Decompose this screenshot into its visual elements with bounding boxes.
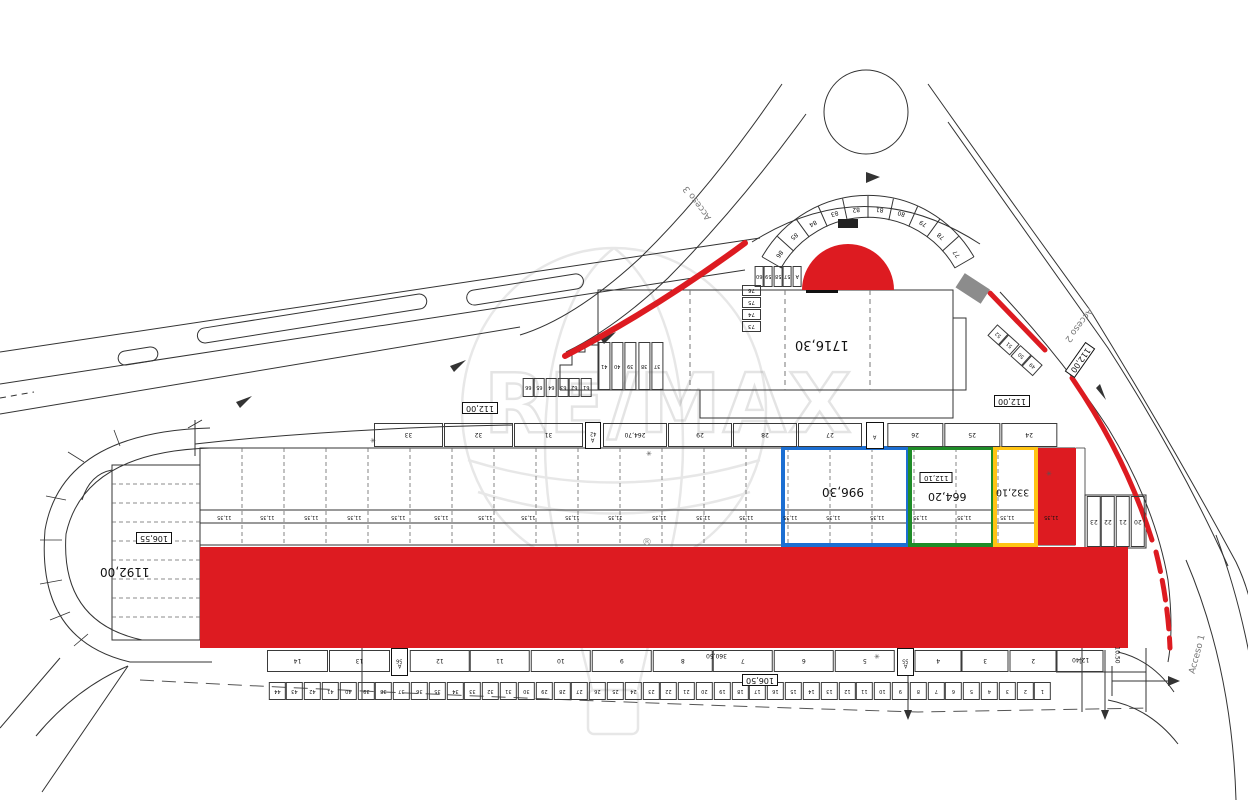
- manhole-icon: ✳: [1046, 470, 1052, 478]
- loop-ticks: [40, 430, 120, 646]
- dimension-text: 11,35: [856, 511, 899, 523]
- stall-number: 80: [897, 209, 907, 218]
- stall-number: 15: [785, 682, 802, 700]
- steps-stall-row: 4140393837: [597, 342, 664, 390]
- stall-number: 79: [918, 218, 928, 228]
- stall-number: 1: [1034, 682, 1051, 700]
- stall-number: 62: [569, 378, 580, 397]
- stall-number: 37: [651, 342, 663, 390]
- stall-number: A: [793, 266, 802, 287]
- stall-number: 40: [340, 682, 357, 700]
- red-dome: [802, 244, 894, 290]
- stall-number: 3: [999, 682, 1016, 700]
- entrance-arrow-line: [1112, 666, 1172, 696]
- stall-number: 14: [803, 682, 820, 700]
- stall-number: 22: [1101, 496, 1115, 547]
- dimension-text: 11,35: [246, 511, 289, 523]
- stall-number: 20: [1131, 496, 1145, 547]
- stall-number: 59: [764, 266, 773, 287]
- dim-112-left: 112,00: [462, 402, 498, 414]
- stall-number: 6: [774, 650, 834, 672]
- blue-parcel-area-label: 996,30: [822, 486, 864, 498]
- stall-number: 11: [856, 682, 873, 700]
- stall-number: 24: [625, 682, 642, 700]
- stall-number: 58: [774, 266, 783, 287]
- exit-road-lines: [0, 658, 128, 792]
- stall-number: 23: [643, 682, 660, 700]
- stall-number: 3: [962, 650, 1009, 672]
- left-lot-area-label: 1192,00: [100, 566, 150, 578]
- stall-number: 31: [514, 423, 583, 447]
- bottom-small-stall-row: 4443424140393837363534333231302928272625…: [268, 682, 1052, 700]
- building-step-right: [953, 318, 966, 390]
- loop-inner2: [82, 470, 112, 500]
- dimension-text: 11,35: [551, 511, 594, 523]
- stall-number: 33: [464, 682, 481, 700]
- stall-number: 39: [624, 342, 636, 390]
- stall-number: 65: [534, 378, 545, 397]
- stall-number: 4: [915, 650, 962, 672]
- stall-number: 39: [358, 682, 375, 700]
- entrance-arc: [1108, 700, 1178, 744]
- stall-number: 5: [835, 650, 895, 672]
- stall-number: 21: [1116, 496, 1130, 547]
- stall-number: 2: [1017, 682, 1034, 700]
- stall-number: 12: [410, 650, 470, 672]
- dimension-text: 11,35: [333, 511, 376, 523]
- stall-number: 61: [581, 378, 592, 397]
- dimension-text: 11,35: [377, 511, 420, 523]
- dim-112-right: 112,00: [994, 395, 1030, 407]
- stall-number: 21: [678, 682, 695, 700]
- stall-number: 30: [518, 682, 535, 700]
- stall-number: 43: [286, 682, 303, 700]
- arrow-icon: [450, 360, 466, 372]
- stall-number: 27: [798, 423, 862, 447]
- stall-number: 8: [910, 682, 927, 700]
- stall-number: 5: [963, 682, 980, 700]
- stall-number: 33: [374, 423, 443, 447]
- watermark-registered-mark: ®: [642, 538, 652, 548]
- dimension-text: 11,35: [725, 511, 768, 523]
- stall-number: 29: [668, 423, 732, 447]
- stall-number: 10: [874, 682, 891, 700]
- stall-number: 57: [783, 266, 792, 287]
- stall-number: 2: [1010, 650, 1057, 672]
- acceso1-arc-outer: [1216, 535, 1248, 800]
- dim-12-40: 12,40: [1072, 656, 1089, 662]
- stall-number: 10: [531, 650, 591, 672]
- stall-number: 77: [952, 249, 962, 259]
- stall-number: 13: [329, 650, 390, 672]
- stall-number: 7: [928, 682, 945, 700]
- roundabout-circle: [824, 70, 908, 154]
- stall-number: 29: [536, 682, 553, 700]
- stall-number: 12: [839, 682, 856, 700]
- dimension-text: 11,35: [769, 511, 812, 523]
- stall-number: 34: [447, 682, 464, 700]
- narrow-stall-a: A: [866, 422, 884, 449]
- arrow-icon: [1168, 676, 1180, 686]
- gray-utility-box: [956, 273, 990, 304]
- stall-number: 83: [830, 209, 840, 218]
- dimension-text: 11,35: [594, 511, 637, 523]
- stall-number: 23: [1087, 496, 1101, 547]
- traffic-island: [117, 346, 159, 366]
- arrow-icon: [1096, 384, 1106, 400]
- dimension-text: 11,35: [1030, 511, 1073, 523]
- dimension-text: 11,35: [986, 511, 1029, 523]
- dim-360-50: 360,50: [706, 652, 727, 658]
- acceso1-arc: [1186, 560, 1236, 800]
- stall-number: 63: [558, 378, 569, 397]
- stall-number: 86: [774, 249, 784, 259]
- bottom-wide-row-b: 12111098765: [409, 650, 895, 672]
- building-area-label: 1716,30: [795, 338, 849, 351]
- narrow-stall-56: 56A: [391, 648, 408, 676]
- site-plan: RE/MAX: [0, 0, 1248, 800]
- dimension-text: 11,35: [943, 511, 986, 523]
- stall-number: 82: [852, 206, 861, 214]
- stall-number: 8: [653, 650, 713, 672]
- stall-number: 35: [429, 682, 446, 700]
- arc-dark-tag: [838, 219, 858, 228]
- field-cell-dividers: [242, 448, 1040, 545]
- stall-number: 25: [607, 682, 624, 700]
- dimension-text: 11,35: [899, 511, 942, 523]
- stall-number: 38: [638, 342, 650, 390]
- stall-number: 31: [500, 682, 517, 700]
- stall-number: 41: [598, 342, 610, 390]
- stall-number: 38: [375, 682, 392, 700]
- stall-number: 32: [482, 682, 499, 700]
- left-block-rows: [112, 484, 200, 617]
- top-stall-row-b: 264,70292827: [602, 423, 862, 447]
- stall-number: 27: [571, 682, 588, 700]
- narrow-stall-42: 42A: [585, 422, 601, 449]
- stall-number: 76: [742, 285, 761, 296]
- loop-inner: [66, 448, 212, 640]
- top-stall-row-a: 333231: [373, 423, 583, 447]
- red-zone-right: [1038, 448, 1076, 545]
- stall-number: 9: [592, 650, 652, 672]
- stall-number: 64: [546, 378, 557, 397]
- stall-number: 74: [742, 309, 761, 320]
- arrow-icon: [866, 172, 880, 183]
- road-line: [0, 238, 760, 352]
- stall-number: 25: [944, 423, 1000, 447]
- arrow-icon: [904, 710, 912, 720]
- dimension-text: 11,35: [203, 511, 246, 523]
- building-stall-column: 76757473: [742, 284, 761, 332]
- dimension-text: 11,35: [507, 511, 550, 523]
- stall-number: 81: [876, 206, 885, 214]
- stall-number: 85: [789, 231, 799, 241]
- stall-number: 40: [611, 342, 623, 390]
- stall-number: 11: [470, 650, 530, 672]
- red-curb-right-dashed: [1156, 552, 1170, 648]
- stall-number: 66: [523, 378, 534, 397]
- roundabout-left-branch-inner: [566, 114, 806, 352]
- stall-number: 9: [892, 682, 909, 700]
- stall-number: 44: [269, 682, 286, 700]
- stall-number: 26: [887, 423, 943, 447]
- dimension-text: 11,35: [420, 511, 463, 523]
- stall-number: 22: [660, 682, 677, 700]
- green-parcel-sub-label: 112,10: [920, 472, 953, 483]
- plan-linework: RE/MAX: [0, 0, 1248, 800]
- connector: [1076, 448, 1085, 495]
- cell-dimension-row: 11,3511,3511,3511,3511,3511,3511,3511,35…: [202, 511, 1073, 523]
- red-zone-main: [200, 547, 1128, 648]
- right-stall-column: 23222120: [1086, 496, 1145, 547]
- dome-stall-row: 60595857A: [754, 266, 802, 287]
- stall-number: 73: [742, 321, 761, 332]
- inner-curve: [752, 206, 980, 244]
- manhole-icon: ✳: [646, 450, 652, 458]
- stall-number: 32: [444, 423, 513, 447]
- exit-road-curve: [36, 666, 128, 736]
- mid-stall-row: 666564636261: [522, 378, 592, 397]
- top-stall-row-c: 262524: [886, 423, 1058, 447]
- stall-number: 78: [936, 231, 946, 241]
- dimension-text: 11,35: [290, 511, 333, 523]
- stall-number: 13: [821, 682, 838, 700]
- stall-number: 20: [696, 682, 713, 700]
- dimension-text: 11,35: [812, 511, 855, 523]
- stall-number: 75: [742, 297, 761, 308]
- stall-number: 37: [393, 682, 410, 700]
- arrow-icon: [236, 396, 252, 408]
- green-parcel-area-label: 664,20: [928, 491, 967, 502]
- stall-number: 6: [945, 682, 962, 700]
- dimension-text: 11,35: [638, 511, 681, 523]
- manhole-icon: ✳: [370, 437, 376, 445]
- stall-number: 4: [981, 682, 998, 700]
- bottom-wide-row-a: 1413: [266, 650, 390, 672]
- stall-number: 36: [411, 682, 428, 700]
- dim-106-55: 106,55: [136, 532, 172, 544]
- stall-number: 41: [322, 682, 339, 700]
- stall-number: 26: [589, 682, 606, 700]
- dim-106-50: 106,50: [742, 674, 778, 686]
- stall-number: 28: [733, 423, 797, 447]
- stall-number: 19: [714, 682, 731, 700]
- stall-number: 264,70: [603, 423, 667, 447]
- stall-number: 14: [267, 650, 328, 672]
- dim-10-50: 10,50: [1114, 646, 1120, 663]
- road-dash: [0, 392, 34, 398]
- manhole-icon: ✳: [874, 653, 880, 661]
- yellow-parcel-area-label: 332,10: [996, 487, 1029, 497]
- stall-number: 28: [554, 682, 571, 700]
- left-block-outline: [112, 465, 200, 640]
- dimension-text: 11,35: [464, 511, 507, 523]
- stall-number: 84: [808, 218, 818, 228]
- narrow-stall-55: 55A: [897, 648, 914, 676]
- arrow-icon: [1101, 710, 1109, 720]
- stall-number: 24: [1001, 423, 1057, 447]
- dimension-text: 11,35: [682, 511, 725, 523]
- stall-number: 42: [304, 682, 321, 700]
